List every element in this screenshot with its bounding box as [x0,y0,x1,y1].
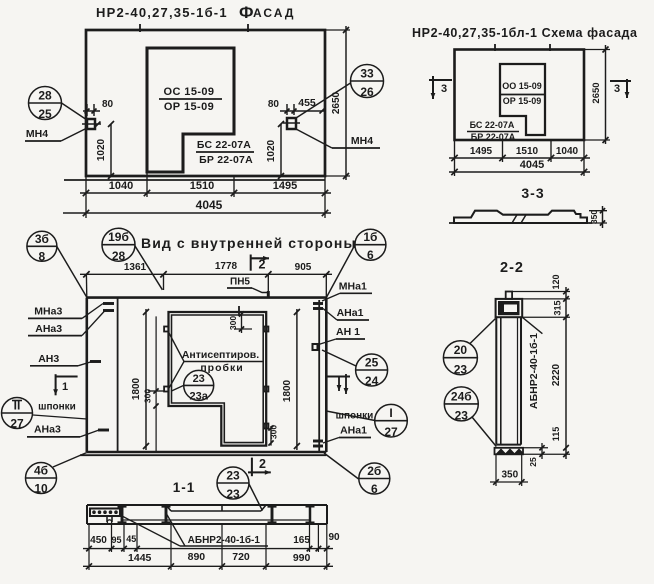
svg-text:2650: 2650 [331,91,342,114]
svg-text:АНа1: АНа1 [340,425,367,437]
svg-text:2: 2 [259,258,266,272]
svg-text:23: 23 [454,362,468,376]
svg-text:БС 22-07А: БС 22-07А [470,120,515,130]
svg-text:АСАД: АСАД [253,6,295,20]
svg-text:350: 350 [589,210,599,224]
svg-text:1445: 1445 [128,552,152,564]
svg-text:1361: 1361 [124,262,147,273]
svg-text:1800: 1800 [282,379,293,402]
svg-text:300: 300 [269,425,279,439]
svg-text:1778: 1778 [215,261,238,272]
svg-text:990: 990 [293,552,311,564]
svg-text:80: 80 [102,99,114,110]
svg-text:2: 2 [259,457,266,471]
svg-text:ОО 15-09: ОО 15-09 [502,81,542,91]
svg-text:I: I [389,406,392,420]
svg-text:23: 23 [226,469,240,483]
svg-text:3-3: 3-3 [521,185,544,201]
svg-text:80: 80 [268,99,280,110]
svg-text:25: 25 [38,107,52,121]
svg-text:1б: 1б [363,230,377,244]
svg-text:1510: 1510 [190,180,214,192]
svg-text:20: 20 [454,343,468,357]
svg-text:БС 22-07А: БС 22-07А [197,139,251,151]
svg-text:95: 95 [111,535,121,545]
svg-text:2-2: 2-2 [500,260,524,276]
svg-text:33: 33 [360,67,374,81]
svg-text:МНа3: МНа3 [34,306,62,318]
svg-text:АНа1: АНа1 [337,307,364,319]
svg-text:4б: 4б [34,464,48,478]
svg-text:450: 450 [90,535,107,546]
svg-text:890: 890 [188,551,206,563]
svg-text:Антисептиров.: Антисептиров. [182,349,259,361]
svg-text:6: 6 [367,248,374,262]
svg-text:115: 115 [551,427,561,442]
svg-text:23: 23 [455,408,469,422]
svg-text:шпонки: шпонки [38,402,76,413]
svg-text:3: 3 [614,83,620,95]
svg-text:23: 23 [226,487,240,501]
svg-text:4045: 4045 [196,198,223,212]
svg-text:27: 27 [10,417,24,431]
svg-text:25: 25 [528,457,538,467]
svg-text:Ф: Ф [239,3,254,22]
svg-text:1020: 1020 [96,138,107,161]
svg-text:24б: 24б [451,389,472,403]
svg-text:1040: 1040 [556,146,579,157]
svg-text:2650: 2650 [591,82,602,103]
svg-text:1495: 1495 [273,180,297,192]
svg-text:165: 165 [293,535,310,546]
svg-text:НР2-40,27,35-1б-1: НР2-40,27,35-1б-1 [96,5,228,20]
svg-text:НР2-40,27,35-1бл-1 Схема фасад: НР2-40,27,35-1бл-1 Схема фасада [412,26,638,40]
svg-text:МН4: МН4 [351,135,373,147]
svg-text:АНа3: АНа3 [35,323,62,335]
svg-text:1-1: 1-1 [173,480,196,495]
svg-text:3: 3 [441,83,447,95]
svg-text:6: 6 [371,482,378,496]
svg-text:45: 45 [126,534,136,544]
svg-text:ОР 15-09: ОР 15-09 [164,101,214,113]
svg-text:1800: 1800 [131,377,142,400]
svg-text:ОС 15-09: ОС 15-09 [164,86,215,98]
svg-text:БР 22-07А: БР 22-07А [471,132,516,142]
svg-text:10: 10 [34,482,48,496]
svg-text:23а: 23а [190,391,209,403]
svg-text:720: 720 [232,551,250,563]
svg-text:90: 90 [328,532,340,543]
svg-text:120: 120 [551,274,561,289]
svg-text:24: 24 [365,374,379,388]
svg-text:АН3: АН3 [38,353,59,365]
svg-text:Вид с внутренней стороны: Вид с внутренней стороны [141,235,357,251]
svg-text:1: 1 [62,381,68,393]
svg-text:1020: 1020 [266,139,277,162]
svg-text:АНа3: АНа3 [34,424,61,436]
svg-text:19б: 19б [108,230,129,244]
svg-text:28: 28 [112,249,126,263]
svg-text:315: 315 [553,300,563,315]
svg-text:350: 350 [501,470,518,481]
svg-text:АН 1: АН 1 [336,326,360,338]
svg-text:БР 22-07А: БР 22-07А [199,154,253,166]
svg-text:26: 26 [360,85,374,99]
svg-text:27: 27 [384,425,398,439]
svg-text:АБНР2-40-1б-1: АБНР2-40-1б-1 [528,333,540,409]
svg-text:2б: 2б [367,464,381,478]
svg-text:2220: 2220 [551,363,562,386]
svg-text:МН4: МН4 [26,128,48,140]
svg-text:8: 8 [39,250,46,264]
svg-text:300: 300 [228,316,238,330]
svg-text:28: 28 [38,89,52,103]
svg-text:3б: 3б [35,232,49,246]
svg-text:1510: 1510 [516,146,539,157]
svg-text:905: 905 [295,262,312,273]
svg-text:4045: 4045 [520,159,544,171]
svg-text:25: 25 [365,356,379,370]
svg-text:ОР 15-09: ОР 15-09 [503,96,542,106]
svg-text:1040: 1040 [109,180,133,192]
svg-text:АБНР2-40-1б-1: АБНР2-40-1б-1 [188,534,261,546]
svg-text:ПН5: ПН5 [230,277,250,288]
svg-text:МНа1: МНа1 [339,281,367,293]
svg-text:23: 23 [193,373,205,385]
svg-text:1495: 1495 [470,146,493,157]
